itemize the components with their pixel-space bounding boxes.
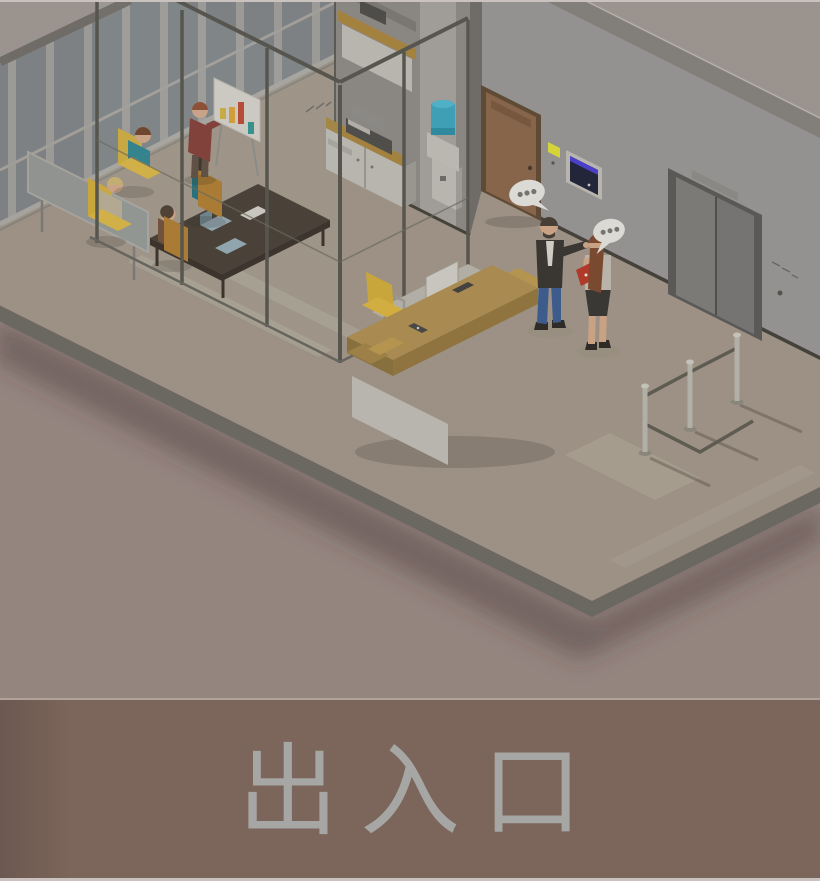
entrance-caption-band: 出入口 bbox=[0, 698, 820, 881]
entrance-scene-card: 出入口 bbox=[0, 0, 820, 881]
isometric-office-scene bbox=[0, 0, 820, 698]
elevator-call-button bbox=[778, 291, 783, 296]
scene-illustration bbox=[0, 0, 820, 698]
door-knob bbox=[528, 166, 532, 170]
entrance-caption: 出入口 bbox=[216, 736, 604, 842]
